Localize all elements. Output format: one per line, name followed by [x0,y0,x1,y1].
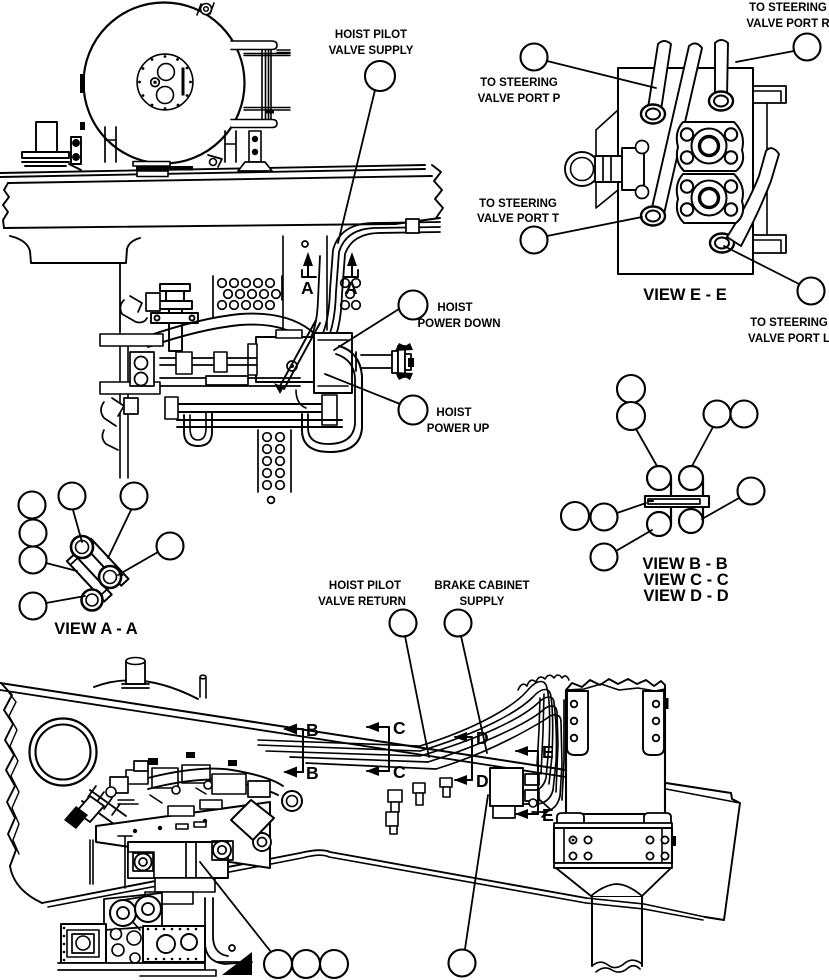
svg-text:VALVE RETURN: VALVE RETURN [318,596,406,608]
svg-text:VALVE PORT L: VALVE PORT L [748,333,829,345]
svg-text:TO STEERING: TO STEERING [479,198,557,210]
svg-text:B: B [306,763,319,783]
svg-text:A: A [301,278,314,298]
svg-text:D: D [476,771,489,791]
svg-text:VALVE SUPPLY: VALVE SUPPLY [329,45,414,57]
svg-text:VALVE PORT T: VALVE PORT T [477,213,559,225]
svg-text:C: C [393,718,406,738]
svg-text:VIEW D - D: VIEW D - D [643,587,728,605]
svg-text:HOIST PILOT: HOIST PILOT [329,580,401,592]
svg-text:TO STEERING: TO STEERING [750,317,828,329]
svg-text:B: B [306,720,319,740]
svg-text:TO STEERING: TO STEERING [749,2,827,14]
svg-text:POWER UP: POWER UP [427,423,490,435]
svg-text:E: E [542,742,554,762]
svg-text:HOIST: HOIST [437,302,472,314]
svg-text:C: C [393,762,406,782]
svg-text:HOIST PILOT: HOIST PILOT [335,29,407,41]
svg-text:VALVE PORT R: VALVE PORT R [746,18,829,30]
svg-text:VIEW E - E: VIEW E - E [643,286,726,304]
svg-text:D: D [476,728,489,748]
svg-text:A: A [345,278,358,298]
svg-text:E: E [542,805,554,825]
svg-text:SUPPLY: SUPPLY [460,596,505,608]
svg-text:POWER DOWN: POWER DOWN [417,318,500,330]
svg-text:VIEW A - A: VIEW A - A [54,620,137,638]
svg-text:VALVE PORT P: VALVE PORT P [478,93,561,105]
svg-text:HOIST: HOIST [436,407,471,419]
svg-text:TO STEERING: TO STEERING [480,77,558,89]
svg-text:BRAKE CABINET: BRAKE CABINET [434,580,529,592]
